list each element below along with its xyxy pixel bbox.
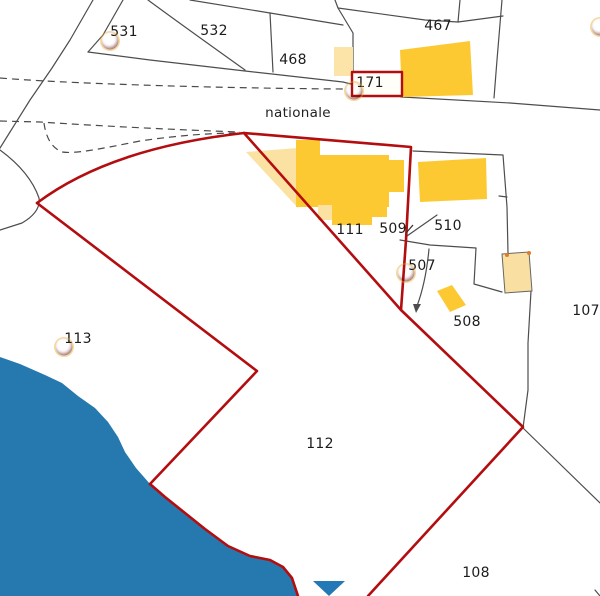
- parcel-line-right-of-467: [458, 16, 503, 22]
- parcel-468-north: [270, 13, 343, 25]
- parcel-532-north: [190, 0, 270, 13]
- orange-marker-531[interactable]: [102, 33, 119, 50]
- parcel-507-south-line: [400, 240, 502, 292]
- building-510-dark: [418, 158, 487, 202]
- road-corner-curve-left: [0, 150, 39, 230]
- parcel-467-south: [338, 8, 458, 22]
- track-edge-left: [0, 0, 93, 148]
- orange-marker-113[interactable]: [56, 339, 73, 356]
- map-canvas: [0, 0, 600, 596]
- cadastral-map-viewport[interactable]: nationale 531532467468171111509510507508…: [0, 0, 600, 596]
- road-north-dashed-edge: [0, 78, 343, 89]
- survey-point-dot: [527, 251, 531, 255]
- building-111-lower-right: [356, 193, 387, 217]
- building-467-dark: [400, 41, 473, 97]
- orange-marker-171[interactable]: [346, 83, 363, 100]
- leader-arrowhead-507: [413, 304, 421, 313]
- building-468-light: [334, 47, 353, 76]
- selected-point-triangle[interactable]: [313, 581, 345, 596]
- parcel-107-108-boundary: [523, 291, 600, 503]
- leader-line-507: [417, 249, 429, 306]
- building-107-light: [502, 252, 532, 293]
- survey-point-dot: [505, 253, 509, 257]
- divider-532-468: [270, 13, 273, 72]
- building-111-right-wing: [372, 160, 404, 192]
- divider-531-532: [148, 0, 245, 70]
- orange-marker-507[interactable]: [398, 265, 415, 282]
- divider-509-510: [407, 215, 437, 236]
- parcel-467-east: [458, 0, 460, 22]
- parcel-line-vertical-right: [494, 0, 502, 98]
- building-111-light-triangle: [246, 148, 298, 208]
- building-508-dark: [437, 285, 466, 312]
- road-inner-dashed-edge: [0, 121, 240, 132]
- water-polygon: [0, 357, 298, 596]
- corner-mark-bottom-right: [595, 590, 600, 596]
